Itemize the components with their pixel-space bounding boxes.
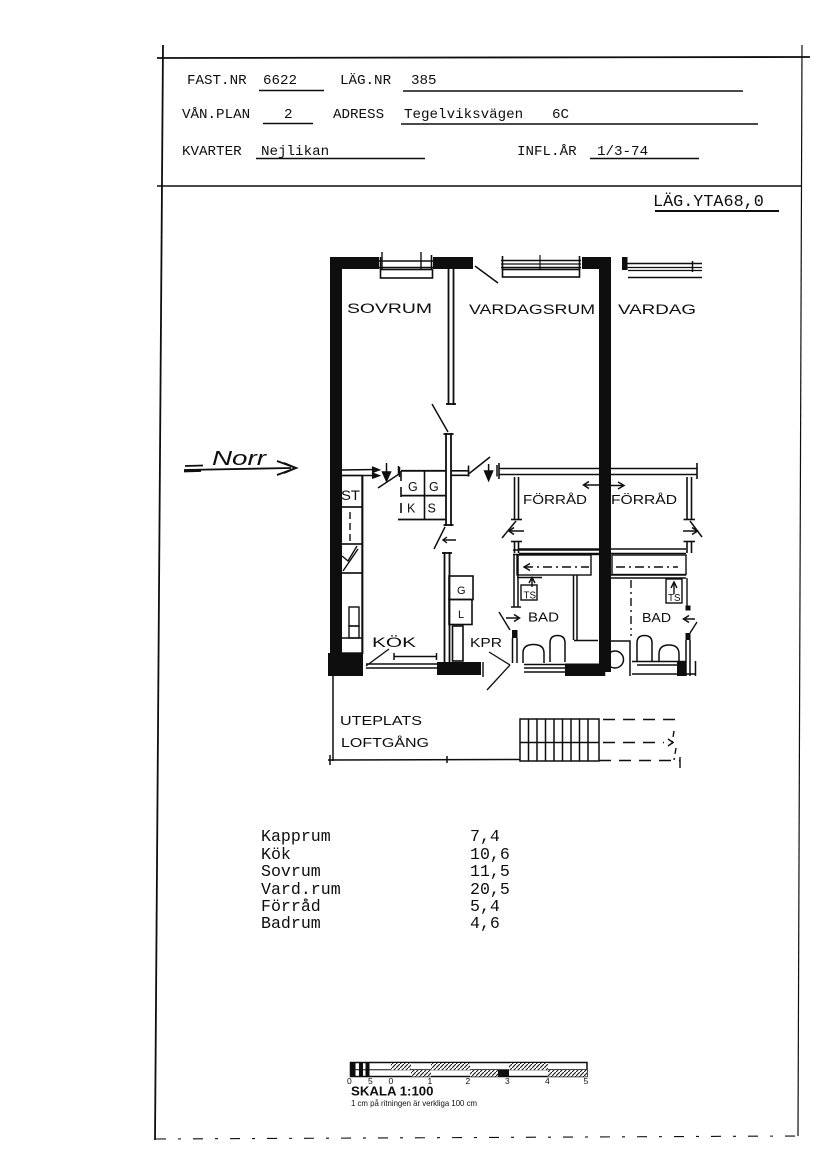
svg-text:KVARTER: KVARTER [182,144,242,160]
svg-text:G: G [429,480,439,494]
svg-text:TS: TS [524,590,537,602]
svg-text:TS: TS [668,592,681,604]
svg-text:S: S [428,502,436,516]
svg-text:UTEPLATS: UTEPLATS [340,714,422,728]
svg-text:INFL.ÅR: INFL.ÅR [517,143,577,160]
svg-text:6622: 6622 [263,73,297,89]
svg-text:FÖRRÅD: FÖRRÅD [523,492,587,507]
svg-text:Tegelviksvägen: Tegelviksvägen [404,107,523,123]
svg-text:KPR: KPR [470,635,502,650]
svg-text:VARDAGSRUM: VARDAGSRUM [469,302,595,317]
svg-text:LOFTGÅNG: LOFTGÅNG [341,735,429,750]
svg-text:SOVRUM: SOVRUM [347,301,432,316]
svg-text:Badrum: Badrum [261,914,321,933]
svg-text:KÖK: KÖK [372,635,416,650]
svg-text:Nejlikan: Nejlikan [261,144,329,160]
svg-text:LÄG.YTA68,0: LÄG.YTA68,0 [653,192,764,212]
svg-text:VÅN.PLAN: VÅN.PLAN [182,106,250,123]
svg-text:2: 2 [466,1076,471,1086]
svg-text:G: G [457,585,466,597]
svg-text:4: 4 [545,1076,550,1086]
svg-text:ADRESS: ADRESS [333,107,384,123]
svg-text:FÖRRÅD: FÖRRÅD [611,492,677,507]
svg-text:Kapprum: Kapprum [261,827,331,846]
svg-text:L: L [458,609,464,621]
svg-text:FAST.NR: FAST.NR [187,73,247,89]
svg-text:385: 385 [411,73,437,89]
svg-text:1 cm på ritningen är verkliga: 1 cm på ritningen är verkliga 100 cm [351,1098,477,1108]
svg-text:K: K [407,502,416,516]
svg-text:Norr: Norr [212,448,268,470]
svg-text:G: G [408,480,418,494]
svg-text:3: 3 [505,1076,510,1086]
svg-text:SKALA 1:100: SKALA 1:100 [351,1085,434,1099]
svg-text:LÄG.NR: LÄG.NR [340,71,392,89]
svg-text:BAD: BAD [642,611,671,625]
svg-text:7,4: 7,4 [470,827,500,846]
svg-text:5: 5 [584,1076,589,1086]
svg-text:11,5: 11,5 [470,862,510,881]
svg-text:2: 2 [284,107,293,123]
svg-text:1/3-74: 1/3-74 [597,144,648,160]
svg-text:6C: 6C [552,107,569,123]
svg-text:VARDAG: VARDAG [618,302,696,317]
svg-text:Sovrum: Sovrum [261,862,321,881]
svg-text:BAD: BAD [528,611,559,625]
svg-text:4,6: 4,6 [470,914,500,933]
svg-text:ST: ST [341,487,360,503]
